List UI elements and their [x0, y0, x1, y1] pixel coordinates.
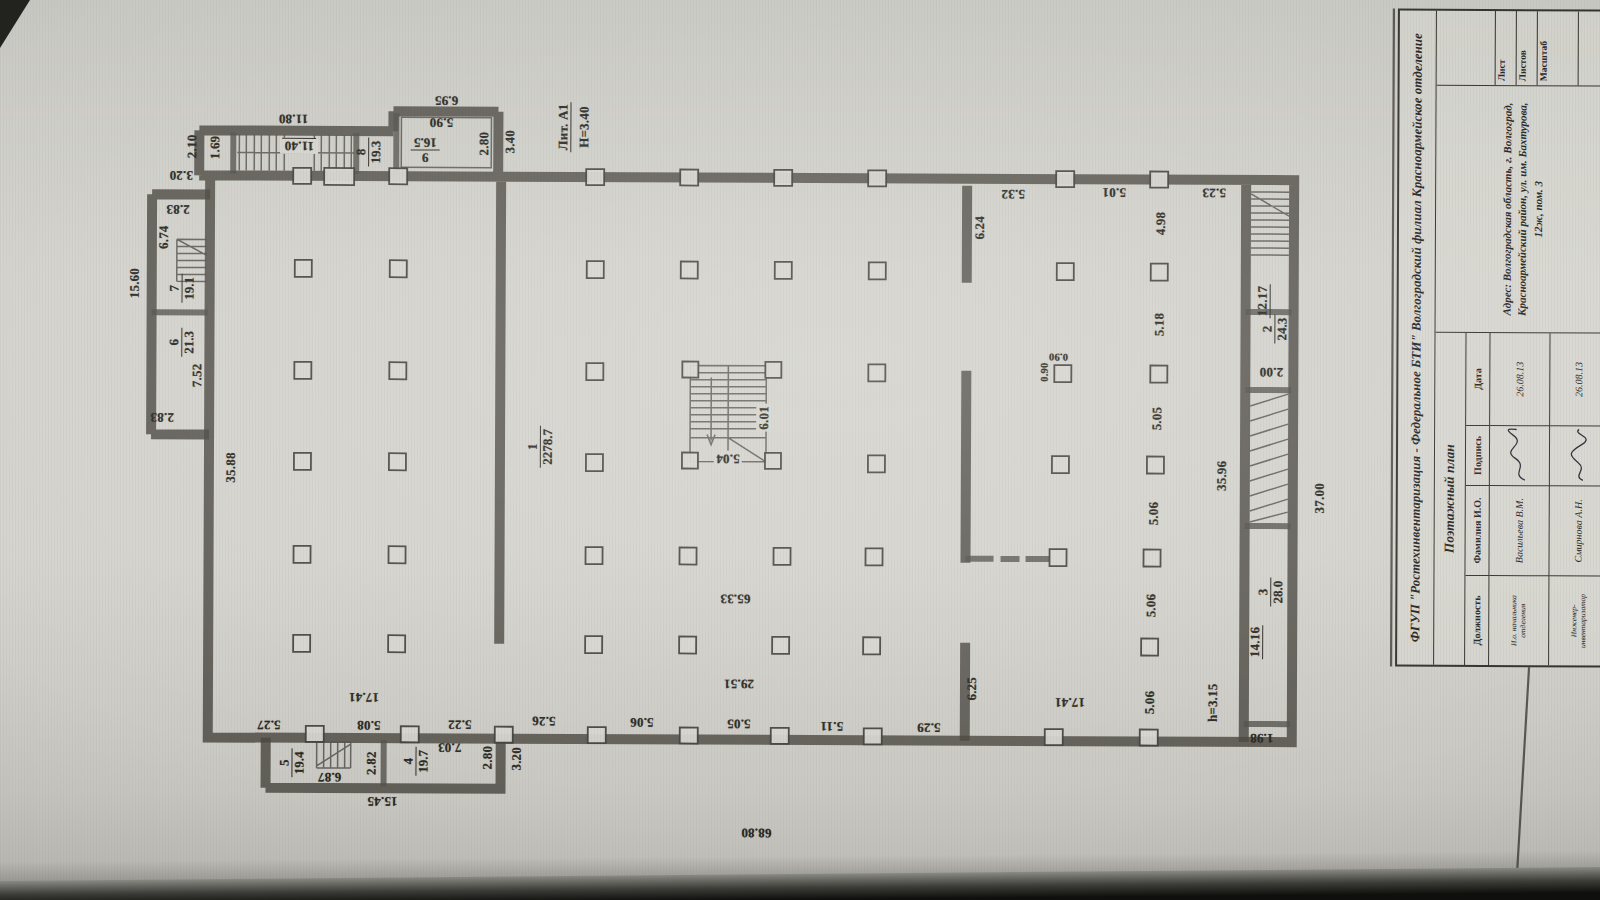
row2-signature	[1549, 425, 1600, 485]
col-header-name: Фамилия И.О.	[1465, 485, 1489, 575]
row1-position: И.о. начальника отделения	[1489, 575, 1549, 665]
column-grid	[293, 260, 1168, 656]
stamp-document-title: Поэтажный план	[1434, 333, 1466, 665]
title-block: ФГУП "Ростехинвентаризация - Федеральное…	[1395, 9, 1600, 668]
stamp-address: Адрес: Волгоградская область, г. Волгогр…	[1436, 85, 1600, 333]
stairs-room5	[317, 742, 351, 768]
sheet-label: Лист	[1496, 11, 1517, 85]
ramp-hatching	[1250, 394, 1289, 522]
room9-inner-outline	[401, 117, 491, 167]
stamp-organization: ФГУП "Ростехинвентаризация - Федеральное…	[1397, 11, 1437, 665]
row2-name: Смирнова А.Н.	[1549, 485, 1600, 575]
row1-date: 26.08.13	[1490, 333, 1550, 425]
col-header-date: Дата	[1466, 333, 1490, 425]
row1-name: Васильева В.М.	[1489, 485, 1549, 575]
sheet-spacer-cell	[1437, 11, 1496, 85]
row2-date: 26.08.13	[1550, 333, 1600, 425]
signature-scribble	[1566, 428, 1592, 484]
partition-walls	[150, 112, 1293, 790]
photo-of-screen: 15.602.101.6911.8011.405.906.952.803.40Л…	[0, 0, 1600, 900]
signature-scribble	[1506, 428, 1532, 484]
scale-label: Масштаб	[1538, 11, 1579, 85]
sheets-label: Листов	[1517, 11, 1538, 85]
central-staircase	[690, 366, 766, 462]
col-header-signature: Подпись	[1466, 425, 1490, 485]
row2-position: Инженер-инвентаризатор	[1549, 575, 1600, 665]
col-header-position: Должность	[1465, 575, 1489, 665]
stairs-room7	[177, 239, 207, 281]
entrance-stairs-top	[237, 135, 354, 172]
stairs-right-corridor	[1251, 192, 1289, 255]
stamp-signature-table: Должность Фамилия И.О. Подпись Дата И.о.…	[1465, 333, 1600, 666]
row1-signature	[1490, 425, 1550, 485]
scanned-floor-plan-sheet: 15.602.101.6911.8011.405.906.952.803.40Л…	[0, 0, 1600, 900]
stamp-sheet-cells: Лист Листов Масштаб	[1437, 11, 1600, 86]
floor-plan-drawing	[0, 0, 1600, 900]
